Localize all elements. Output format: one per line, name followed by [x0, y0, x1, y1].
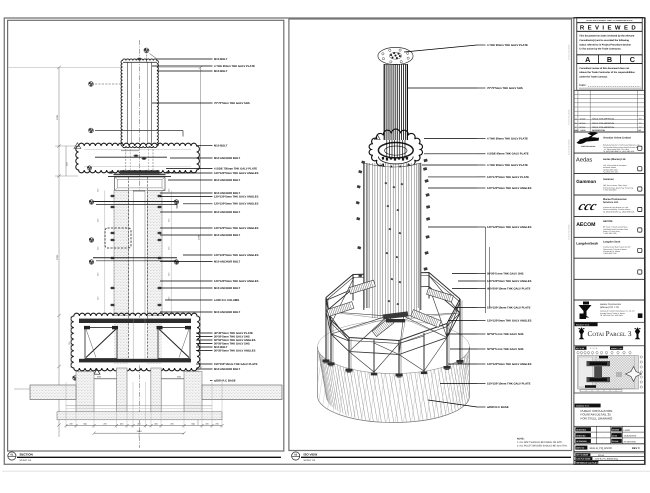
svg-text:AECOM: AECOM [576, 222, 595, 228]
svg-text:DESIGNED: DESIGNED [576, 429, 587, 432]
svg-text:SCALE: SCALE [612, 440, 619, 443]
svg-text:AS SHOWN: AS SHOWN [624, 440, 636, 443]
svg-text:1768: 1768 [56, 114, 59, 120]
svg-text:M10 ANCHOR BOLT: M10 ANCHOR BOLT [214, 179, 240, 182]
svg-text:a 800 R.C COLUMN: a 800 R.C COLUMN [214, 299, 239, 302]
svg-text:2584: 2584 [137, 430, 143, 433]
svg-text:3115-B_PQ_B5000: 3115-B_PQ_B5000 [568, 110, 571, 125]
svg-text:120*120*5mm THK GALV ANGLES: 120*120*5mm THK GALV ANGLES [214, 227, 259, 230]
svg-text:ISSUE FOR APPROVAL: ISSUE FOR APPROVAL [592, 118, 616, 121]
svg-text:M10 ANCHOR BOLT: M10 ANCHOR BOLT [214, 311, 240, 314]
svg-text:AECOM: AECOM [603, 220, 612, 223]
svg-text:2. ALL FILLET WELDED SHOULD BE: 2. ALL FILLET WELDED SHOULD BE 3mm THK. [517, 445, 568, 448]
svg-text:FOR STEEL DRAWING: FOR STEEL DRAWING [581, 416, 613, 420]
svg-text:DRAWING TITLE: DRAWING TITLE [576, 405, 590, 408]
svg-text:120*170*5mm THK GALV PLATE: 120*170*5mm THK GALV PLATE [487, 176, 529, 179]
svg-text:REV C: REV C [632, 447, 640, 450]
svg-text:ISO VIEW: ISO VIEW [304, 452, 318, 456]
svg-text:SCALE 1:8: SCALE 1:8 [304, 459, 316, 462]
svg-text:Date :: Date : [579, 83, 587, 87]
svg-text:Aedas: Aedas [576, 157, 593, 164]
svg-text:4 THK 90mm THK GALV PLATE: 4 THK 90mm THK GALV PLATE [487, 137, 528, 140]
svg-text:M10 ANCHOR BOLT: M10 ANCHOR BOLT [214, 260, 240, 263]
svg-text:4 THK 90mm THK GALV PLATE: 4 THK 90mm THK GALV PLATE [487, 44, 528, 47]
svg-text:This document has been reviewe: This document has been reviewed by the r… [579, 35, 634, 38]
svg-text:2768: 2768 [56, 254, 59, 260]
svg-text:Consultants(s) and is accorded: Consultants(s) and is accorded the follo… [579, 39, 629, 42]
svg-text:Services Ltd.: Services Ltd. [603, 201, 619, 204]
svg-text:M10 ANCHOR BOLT: M10 ANCHOR BOLT [214, 368, 240, 371]
svg-text:4 SIDE 90mm THK GALV PLATE: 4 SIDE 90mm THK GALV PLATE [487, 153, 529, 156]
svg-text:50*50*5 mm THK GALV SHS: 50*50*5 mm THK GALV SHS [487, 333, 524, 336]
svg-text:120*120*5mm THK GALV ANGLES: 120*120*5mm THK GALV ANGLES [487, 363, 532, 366]
svg-text:under the Trade Contract.: under the Trade Contract. [579, 75, 608, 78]
svg-text:400*200*10mm THK GALV PLATE: 400*200*10mm THK GALV PLATE [487, 287, 531, 290]
svg-text:LangdonSeah: LangdonSeah [576, 242, 598, 246]
svg-text:status referred to in Projec: status referred to in Project Procedure … [579, 43, 631, 46]
svg-text:5.4 for action by the Trade Co: 5.4 for action by the Trade Contractor. [579, 48, 621, 51]
svg-text:DWG NO: DWG NO [576, 447, 585, 450]
svg-text:C: C [630, 55, 635, 64]
svg-text:SCALE 1:8: SCALE 1:8 [20, 459, 32, 462]
svg-text:M10 BOLT: M10 BOLT [214, 144, 228, 147]
svg-text:a2500 R.C BASE: a2500 R.C BASE [487, 406, 509, 409]
svg-text:120*120*5mm THK GALV ANGLES: 120*120*5mm THK GALV ANGLES [214, 172, 259, 175]
svg-text:4 THK 90mm THK GALV PLATE: 4 THK 90mm THK GALV PLATE [487, 164, 528, 167]
svg-text:150*150*10mm THK GALV PLATE: 150*150*10mm THK GALV PLATE [487, 306, 531, 309]
svg-text:3 1 1 5 B: 3 1 1 5 B [590, 347, 598, 350]
svg-text:120*120*5mm THK GALV ANGLES: 120*120*5mm THK GALV ANGLES [487, 280, 532, 283]
svg-text:A: A [585, 55, 590, 64]
svg-text:REFERENCE CAD FILE NAME: REFERENCE CAD FILE NAME [576, 461, 602, 464]
svg-text:70*70*5mm THK GALV SHS: 70*70*5mm THK GALV SHS [487, 87, 523, 90]
svg-text:KEY NUMBER: KEY NUMBER [576, 454, 589, 457]
svg-text:REVIEWED: REVIEWED [580, 25, 639, 32]
svg-text:8/JUN: 8/JUN [580, 122, 586, 125]
svg-text:Consultant review of this docu: Consultant review of this document does … [579, 67, 629, 70]
svg-text:PROJECT TITLE: PROJECT TITLE [576, 323, 590, 326]
svg-text:M10 BOLT: M10 BOLT [214, 70, 228, 73]
svg-text:Cotai Parcel 3: Cotai Parcel 3 [588, 330, 632, 338]
svg-text:M10 BOLT: M10 BOLT [214, 58, 228, 61]
svg-text:M10 ANCHOR BOLT: M10 ANCHOR BOLT [214, 157, 240, 160]
svg-text:M10 ANCHOR BOLT: M10 ANCHOR BOLT [214, 287, 240, 290]
svg-text:50*50*5 mm THK GALV SHS: 50*50*5 mm THK GALV SHS [487, 272, 524, 275]
svg-text:1/JUN: 1/JUN [580, 118, 586, 121]
svg-text:DATE: DATE [612, 434, 618, 437]
svg-text:120*120*5mm THK GALV ANGLES: 120*120*5mm THK GALV ANGLES [487, 319, 532, 322]
svg-text:DRAWN: DRAWN [612, 429, 620, 432]
svg-text:CAD FILE NAME: CAD FILE NAME [576, 458, 591, 461]
svg-text:120*120*5mm THK GALV ANGLES: 120*120*5mm THK GALV ANGLES [214, 280, 259, 283]
svg-text:120*120*5mm THK GALV ANGLES: 120*120*5mm THK GALV ANGLES [214, 254, 259, 257]
svg-text:120*120*5mm THK GALV ANGLES: 120*120*5mm THK GALV ANGLES [487, 226, 532, 229]
svg-text:APPROVED: APPROVED [576, 440, 587, 443]
svg-text:3115-B_PQ_B5000: 3115-B_PQ_B5000 [568, 140, 571, 155]
svg-text:120*120*5mm THK GALV ANGLES: 120*120*5mm THK GALV ANGLES [487, 187, 532, 190]
svg-text:Gammon: Gammon [603, 178, 614, 181]
svg-text:M10 ANCHOR BOLT: M10 ANCHOR BOLT [214, 211, 240, 214]
svg-text:3115-B_PQ_B5000: 3115-B_PQ_B5000 [568, 45, 571, 60]
svg-text:ISSUE FOR APPROVAL: ISSUE FOR APPROVAL [592, 122, 616, 125]
svg-text:Venetian Orient Limited: Venetian Orient Limited [603, 136, 631, 139]
svg-text:120*120*5mm THK GALV ANGLES: 120*120*5mm THK GALV ANGLES [214, 195, 259, 198]
svg-text:SECTION: SECTION [20, 452, 33, 456]
svg-text:CHECKED: CHECKED [576, 434, 586, 437]
svg-text:relieve the Trade Contractor o: relieve the Trade Contractor of his resp… [579, 71, 635, 74]
svg-text:120*120*5mm THK GALV ANGLES: 120*120*5mm THK GALV ANGLES [214, 203, 259, 206]
svg-text:Aedas (Macau) Ltd.: Aedas (Macau) Ltd. [603, 158, 626, 161]
svg-text:150*150*10mm THK GALV PLATE: 150*150*10mm THK GALV PLATE [214, 363, 258, 366]
svg-text:ISSUE FOR APPROVAL: ISSUE FOR APPROVAL [592, 126, 616, 129]
svg-text:Gammon: Gammon [576, 179, 596, 184]
svg-text:50*50*5mm THK GALV ANGLES: 50*50*5mm THK GALV ANGLES [214, 349, 256, 352]
svg-text:NOTE:: NOTE: [517, 437, 525, 440]
svg-text:14/JUN/2015: 14/JUN/2015 [624, 435, 638, 438]
svg-text:3115-B_PQ_B5000: 3115-B_PQ_B5000 [568, 225, 571, 240]
svg-text:Langdon Seah: Langdon Seah [603, 240, 621, 243]
svg-text:(Macau) CO. LTD.: (Macau) CO. LTD. [600, 306, 620, 309]
svg-text:B: B [607, 55, 612, 64]
svg-text:4 SIDE 750mm THK GALV PLATE: 4 SIDE 750mm THK GALV PLATE [214, 167, 257, 170]
svg-text:3115-B_PQ_B5000: 3115-B_PQ_B5000 [590, 447, 613, 450]
svg-text:50*50*5 mm THK GALV SHS: 50*50*5 mm THK GALV SHS [487, 348, 524, 351]
svg-text:a2500 R.C BASE: a2500 R.C BASE [214, 379, 236, 382]
svg-text:9/JUN: 9/JUN [580, 126, 586, 129]
svg-text:LIANG: LIANG [624, 429, 631, 432]
svg-text:M10 ANCHOR BOLT: M10 ANCHOR BOLT [214, 234, 240, 237]
svg-text:70*70*5mm THK GALV SHS: 70*70*5mm THK GALV SHS [214, 102, 250, 105]
svg-text:1. ALL BOLT SHOULD BE FIXING O: 1. ALL BOLT SHOULD BE FIXING ON SITE. [517, 441, 563, 444]
svg-text:4 THK 90mm THK GALV PLATE: 4 THK 90mm THK GALV PLATE [214, 65, 255, 68]
svg-text:150*150*10mm THK GALV PLATE: 150*150*10mm THK GALV PLATE [487, 382, 531, 385]
